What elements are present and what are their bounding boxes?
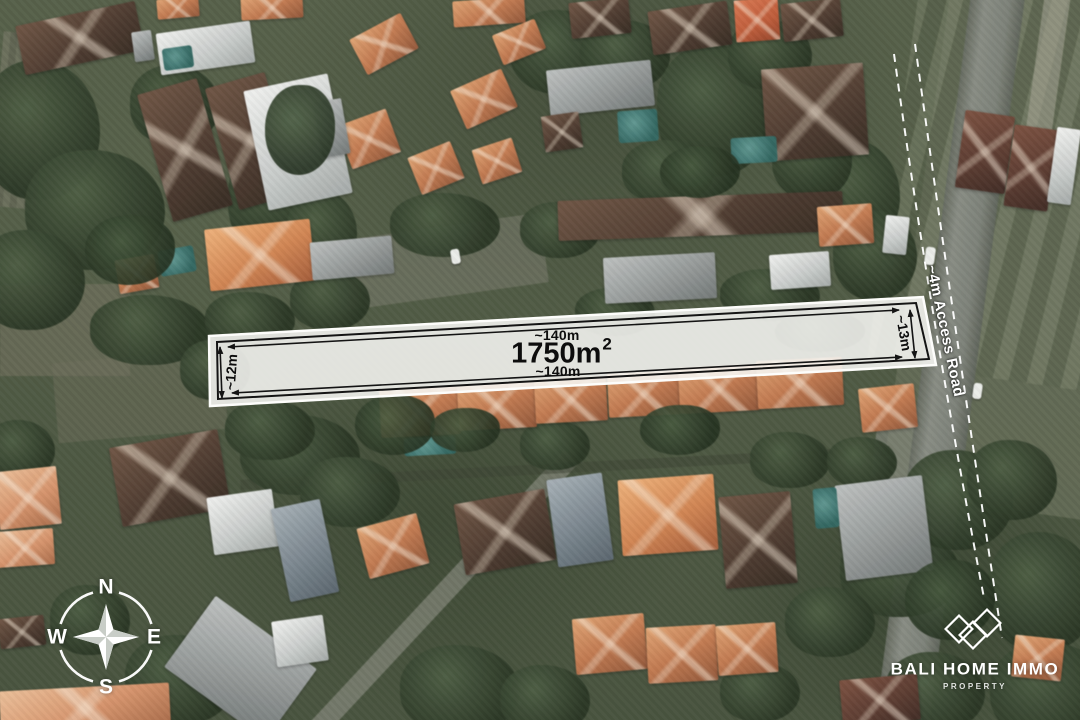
satellite-listing-image: ~140m 1750m2 ~140m ~12m ~13m ~4m Access … [0,0,1080,720]
compass-south-label: S [99,677,113,698]
plot-length-bottom-label: ~140m [536,364,581,378]
brand-tagline: PROPERTY [943,683,1007,691]
brand-name: BALI HOME IMMO [891,661,1060,678]
compass-rose-graphic [61,593,152,682]
brand-logo-diamonds [946,610,1001,649]
compass-north-label: N [98,577,113,598]
compass-east-label: E [147,627,161,648]
compass-west-label: W [47,627,67,648]
plot-area-superscript: 2 [602,335,611,354]
plot-width-left-label: ~12m [223,353,239,390]
